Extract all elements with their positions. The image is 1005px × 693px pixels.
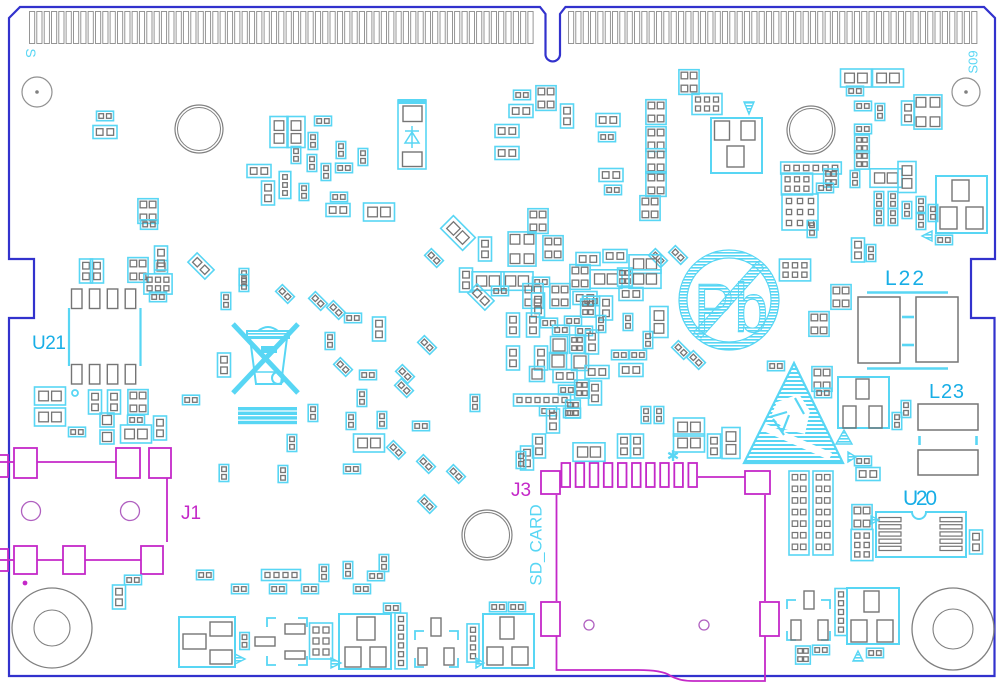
svg-text:U20: U20 bbox=[903, 487, 937, 510]
svg-text:L22: L22 bbox=[885, 267, 924, 290]
svg-text:J3: J3 bbox=[511, 480, 531, 501]
svg-text:U21: U21 bbox=[32, 333, 66, 354]
svg-text:J1: J1 bbox=[181, 503, 201, 524]
svg-text:Pb: Pb bbox=[694, 269, 768, 347]
svg-text:S: S bbox=[23, 48, 39, 57]
svg-text:S09: S09 bbox=[966, 50, 981, 73]
svg-text:L23: L23 bbox=[929, 381, 964, 403]
svg-text:SD_CARD: SD_CARD bbox=[527, 504, 546, 585]
